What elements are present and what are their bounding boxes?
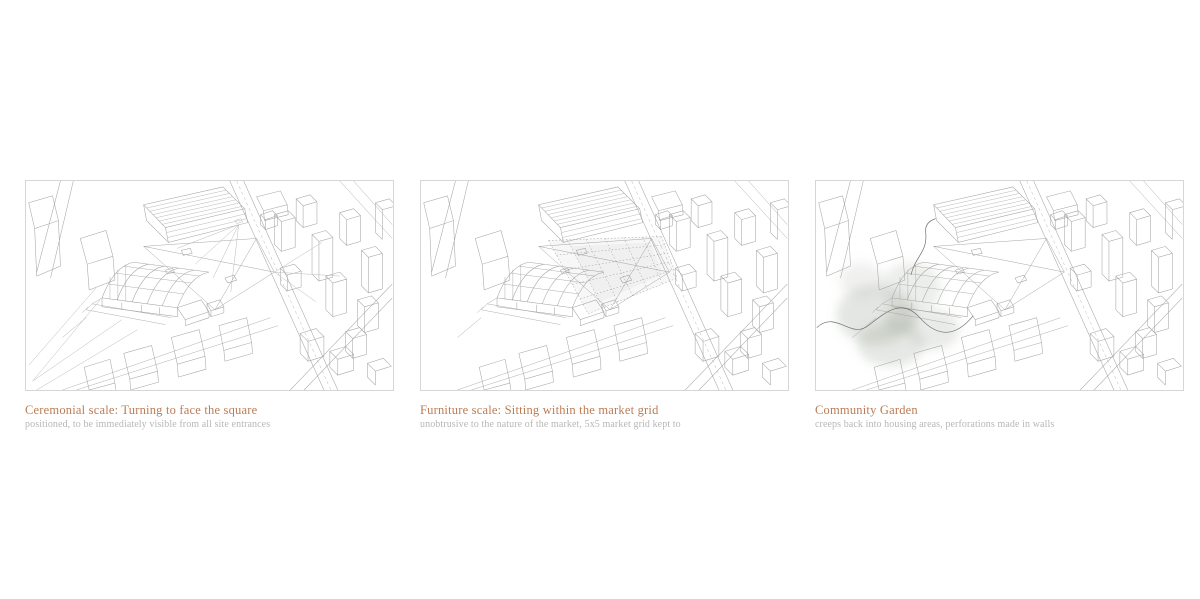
panel-subtitle: creeps back into housing areas, perforat… [815,419,1184,431]
panel-title: Community Garden [815,403,1184,417]
panel-subtitle: positioned, to be immediately visible fr… [25,419,394,431]
city-sketch [816,181,1183,390]
sketch-frame [815,180,1184,391]
city-sketch [421,181,788,390]
panel-subtitle: unobtrusive to the nature of the market,… [420,419,789,431]
panel-community-garden: Community Garden creeps back into housin… [815,180,1184,431]
panel-furniture-scale: Furniture scale: Sitting within the mark… [420,180,789,431]
sketch-frame [420,180,789,391]
market-grid-overlay [549,236,678,313]
panel-title: Furniture scale: Sitting within the mark… [420,403,789,417]
sight-lines-overlay [29,219,340,390]
panel-ceremonial-scale: Ceremonial scale: Turning to face the sq… [25,180,394,431]
sketch-frame [25,180,394,391]
garden-wash-overlay [817,219,974,367]
panel-title: Ceremonial scale: Turning to face the sq… [25,403,394,417]
city-sketch [26,181,393,390]
